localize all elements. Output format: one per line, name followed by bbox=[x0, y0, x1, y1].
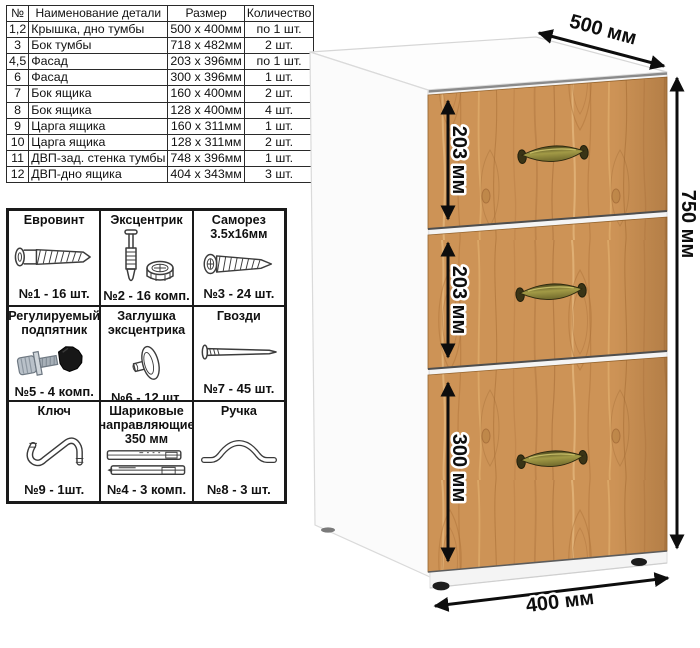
cabinet-foot-front-left bbox=[433, 582, 450, 591]
cabinet-side-panel bbox=[310, 52, 430, 577]
drawer1-dimension-label: 203 мм bbox=[448, 126, 470, 195]
cabinet-diagram: 500 мм 750 мм 400 мм 203 мм 203 мм 300 м… bbox=[0, 0, 700, 648]
drawer2-dimension-label: 203 мм bbox=[448, 266, 470, 335]
cabinet-foot-front-right bbox=[631, 558, 647, 566]
cabinet-foot-back-left bbox=[321, 527, 335, 532]
cabinet-body bbox=[310, 37, 667, 590]
width-dimension-label: 400 мм bbox=[525, 587, 596, 617]
assembly-instruction-sheet: № Наименование детали Размер Количество … bbox=[0, 0, 700, 648]
drawer3-dimension-label: 300 мм bbox=[448, 434, 470, 503]
height-dimension-label: 750 мм bbox=[677, 190, 699, 259]
